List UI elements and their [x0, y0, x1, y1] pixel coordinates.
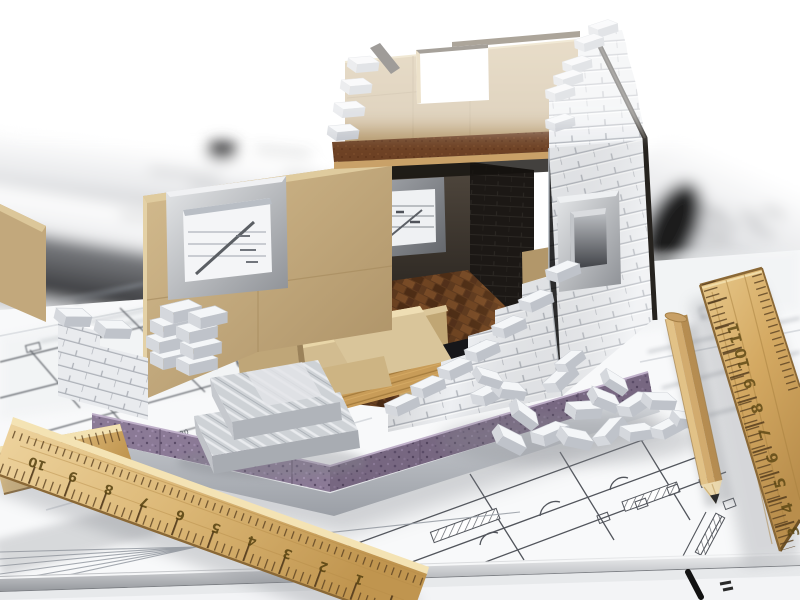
render-canvas: 6 100 — [0, 0, 800, 600]
scene-3d-render: 6 100 — [0, 0, 800, 600]
top-haze — [0, 0, 800, 130]
left-window — [166, 176, 288, 300]
